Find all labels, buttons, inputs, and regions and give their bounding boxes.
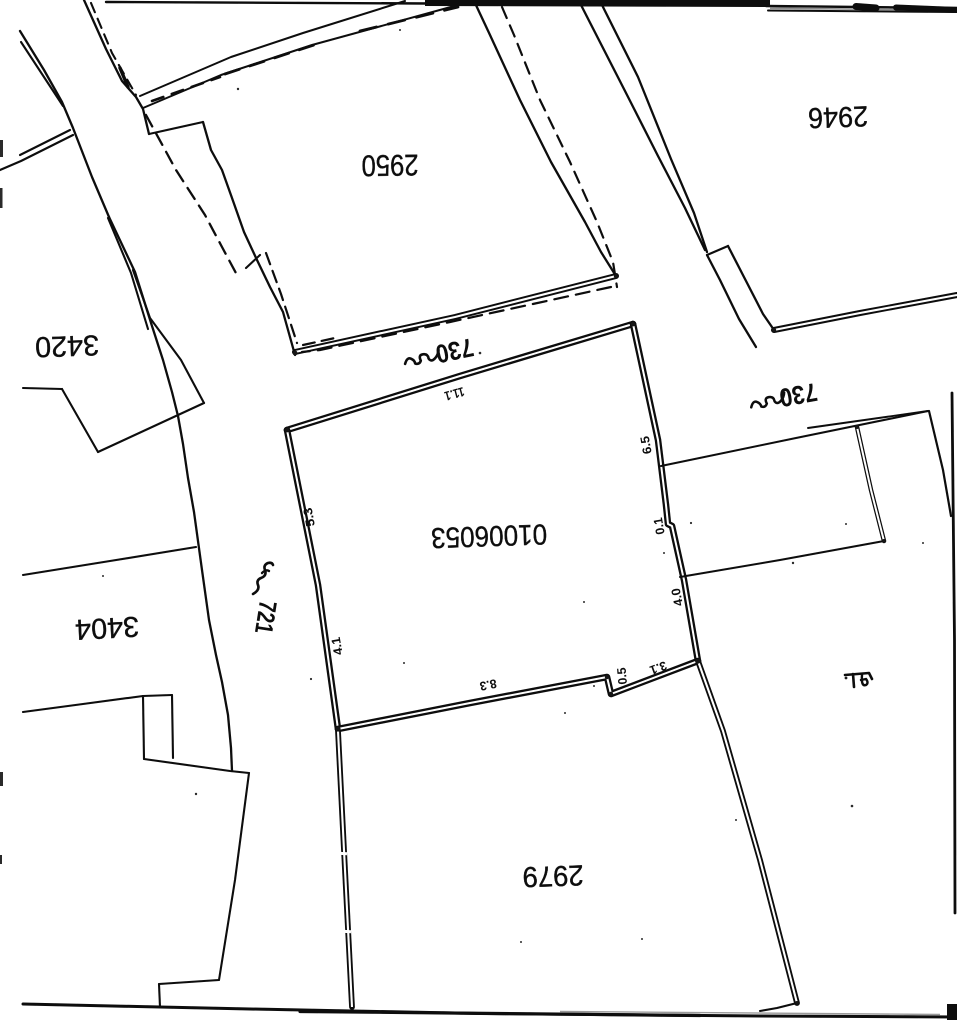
svg-text:3420: 3420 (35, 328, 100, 362)
svg-text:01006053: 01006053 (431, 517, 548, 553)
svg-text:5.3: 5.3 (301, 507, 318, 528)
svg-text:0.1: 0.1 (651, 517, 668, 536)
svg-text:3404: 3404 (74, 610, 140, 645)
svg-text:8.3: 8.3 (478, 676, 497, 693)
svg-text:0.5: 0.5 (615, 667, 630, 685)
svg-text:2979: 2979 (522, 858, 584, 892)
svg-text:4.1: 4.1 (329, 636, 346, 656)
svg-text:2946: 2946 (808, 99, 869, 133)
svg-text:721: 721 (249, 599, 282, 636)
svg-text:11.1: 11.1 (443, 384, 466, 404)
svg-text:6.5: 6.5 (638, 435, 655, 455)
svg-text:2950: 2950 (361, 148, 419, 182)
